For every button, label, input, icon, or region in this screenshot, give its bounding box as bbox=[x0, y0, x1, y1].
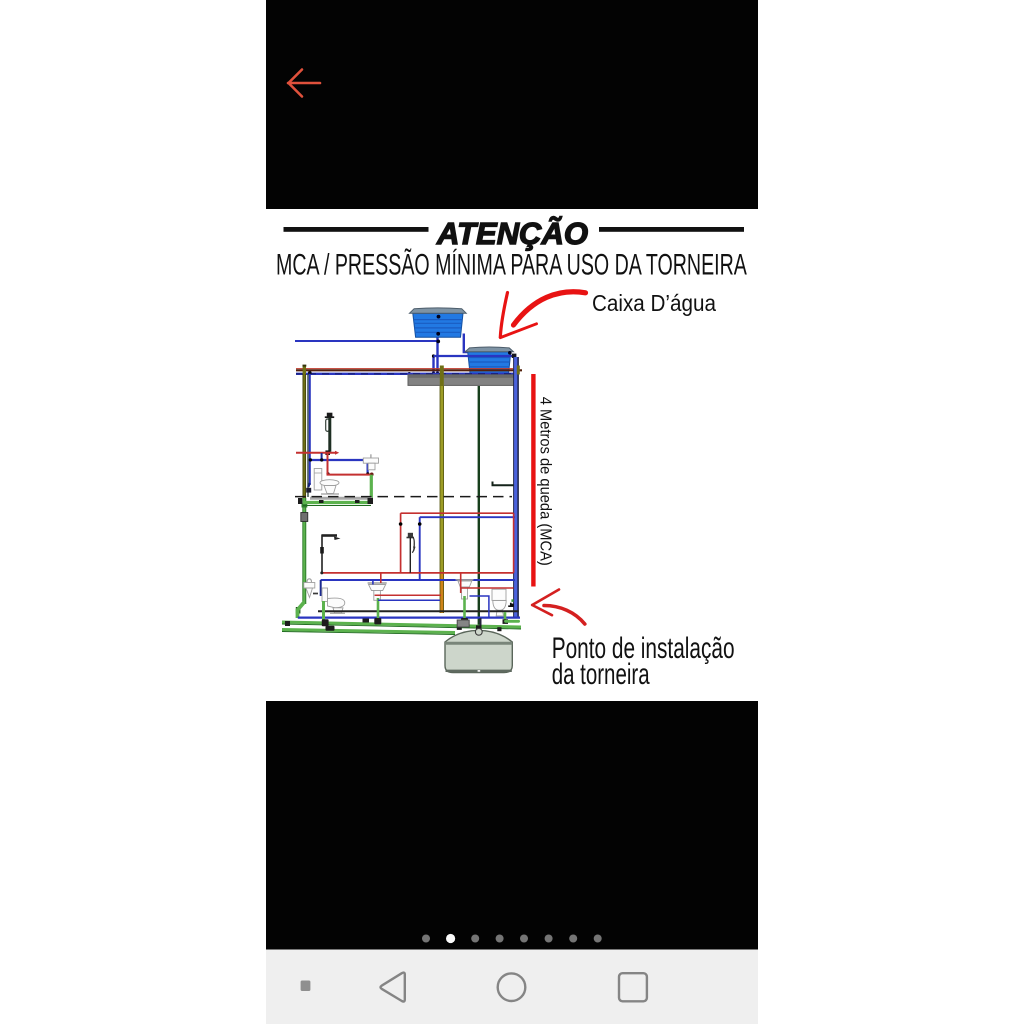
svg-text:4 Metros de queda (MCA): 4 Metros de queda (MCA) bbox=[536, 397, 553, 566]
svg-text:MCA / PRESSÃO MÍNIMA PARA USO: MCA / PRESSÃO MÍNIMA PARA USO DA TORNEIR… bbox=[276, 248, 747, 282]
svg-text:Caixa D’água: Caixa D’água bbox=[592, 290, 717, 317]
svg-text:ATENÇÃO: ATENÇÃO bbox=[436, 216, 588, 251]
svg-text:da torneira: da torneira bbox=[552, 658, 650, 691]
